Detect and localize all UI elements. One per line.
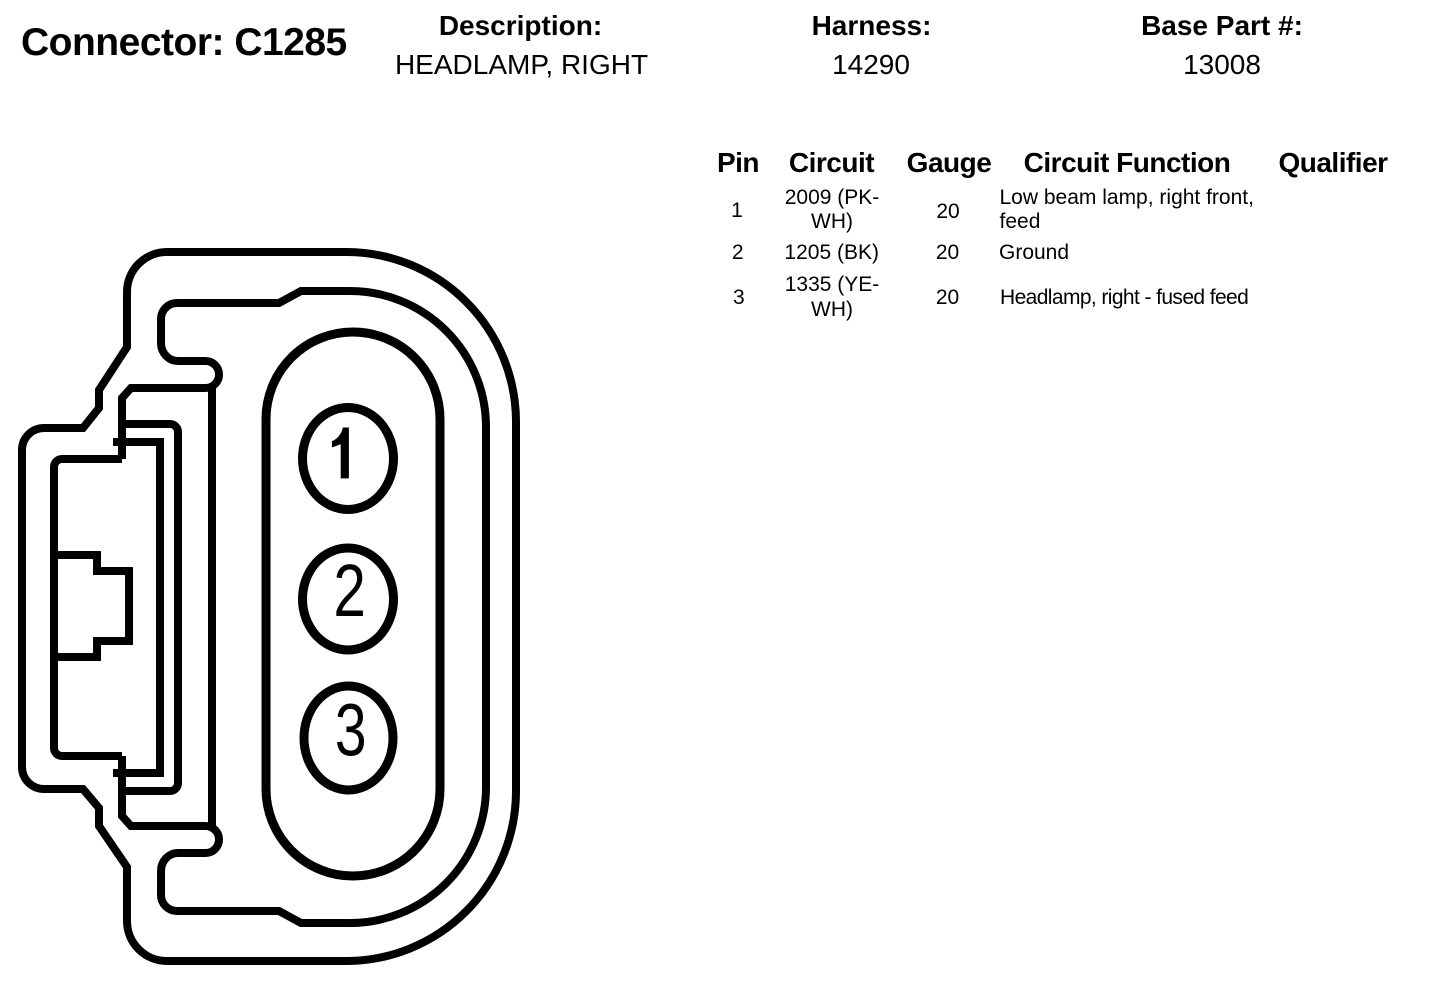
- svg-text:2: 2: [333, 551, 366, 633]
- svg-text:3: 3: [335, 688, 367, 771]
